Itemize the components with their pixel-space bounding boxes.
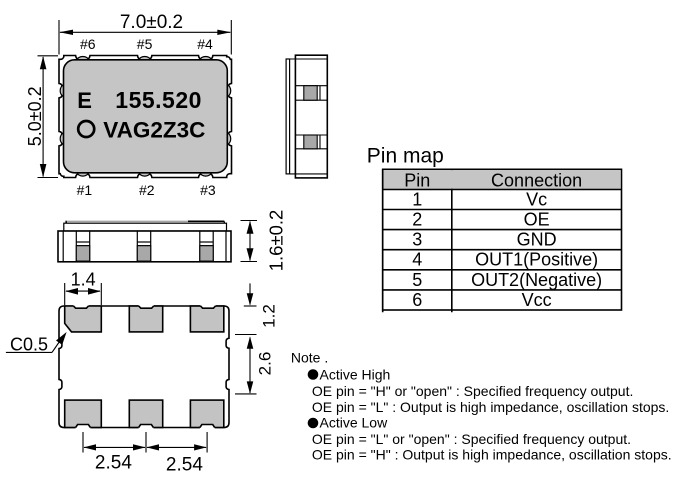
svg-text:2.6: 2.6 [256,352,275,376]
svg-text:2.54: 2.54 [95,453,132,474]
svg-text:2.54: 2.54 [166,455,203,476]
svg-text:OE pin = "H" or "open" : Speci: OE pin = "H" or "open" : Specified frequ… [312,383,633,399]
svg-text:1.6±0.2: 1.6±0.2 [266,210,287,272]
svg-text:155.520: 155.520 [115,87,202,113]
svg-text:2: 2 [412,210,422,230]
svg-text:OE: OE [524,210,550,230]
svg-text:#3: #3 [200,182,216,198]
svg-text:6: 6 [412,290,422,310]
svg-text:Connection: Connection [491,170,582,190]
svg-text:5.0±0.2: 5.0±0.2 [25,86,45,146]
svg-text:OE pin = "L" : Output is high: OE pin = "L" : Output is high impedance,… [312,399,669,415]
svg-text:C0.5: C0.5 [10,335,48,355]
svg-text:3: 3 [412,230,422,250]
svg-text:OE pin = "H" : Output is high: OE pin = "H" : Output is high impedance,… [312,447,672,463]
svg-text:1.4: 1.4 [71,270,96,290]
svg-text:GND: GND [517,230,557,250]
svg-text:Vcc: Vcc [522,290,552,310]
svg-text:VAG2Z3C: VAG2Z3C [103,117,205,142]
svg-text:#4: #4 [197,36,213,52]
svg-text:E: E [77,88,92,113]
svg-text:1: 1 [412,189,422,209]
svg-text:#2: #2 [139,182,155,198]
svg-text:Pin: Pin [404,170,430,190]
svg-text:4: 4 [412,250,422,270]
svg-text:OUT1(Positive): OUT1(Positive) [475,250,598,270]
svg-text:Vc: Vc [526,189,547,209]
svg-text:7.0±0.2: 7.0±0.2 [120,12,183,33]
svg-text:OUT2(Negative): OUT2(Negative) [471,270,602,290]
svg-text:Active Low: Active Low [320,415,389,431]
svg-text:#6: #6 [80,36,96,52]
svg-text:5: 5 [412,270,422,290]
svg-text:1.2: 1.2 [260,304,279,328]
svg-text:#5: #5 [137,36,153,52]
svg-text:Active High: Active High [320,367,391,383]
svg-text:Pin map: Pin map [367,145,444,168]
svg-text:OE pin = "L" or "open" : Speci: OE pin = "L" or "open" : Specified frequ… [312,431,631,447]
svg-text:Note .: Note . [291,350,328,366]
svg-text:#1: #1 [77,182,93,198]
